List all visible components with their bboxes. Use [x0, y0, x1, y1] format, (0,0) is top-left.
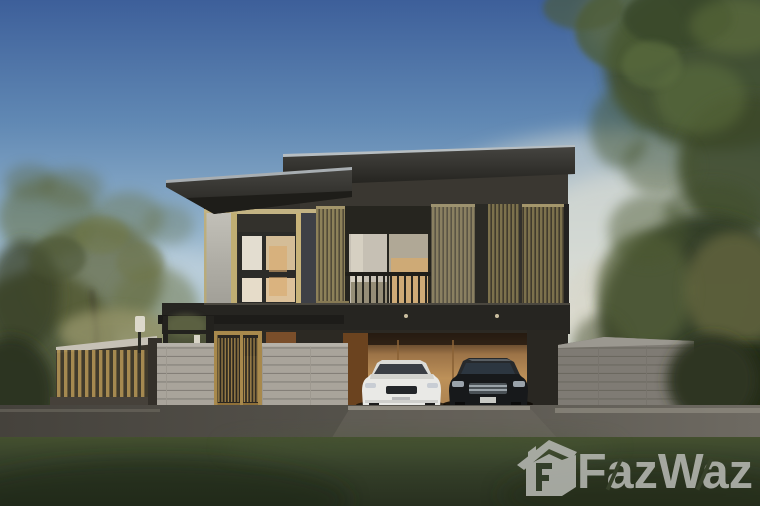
svg-text:FazWaz: FazWaz	[577, 445, 753, 499]
